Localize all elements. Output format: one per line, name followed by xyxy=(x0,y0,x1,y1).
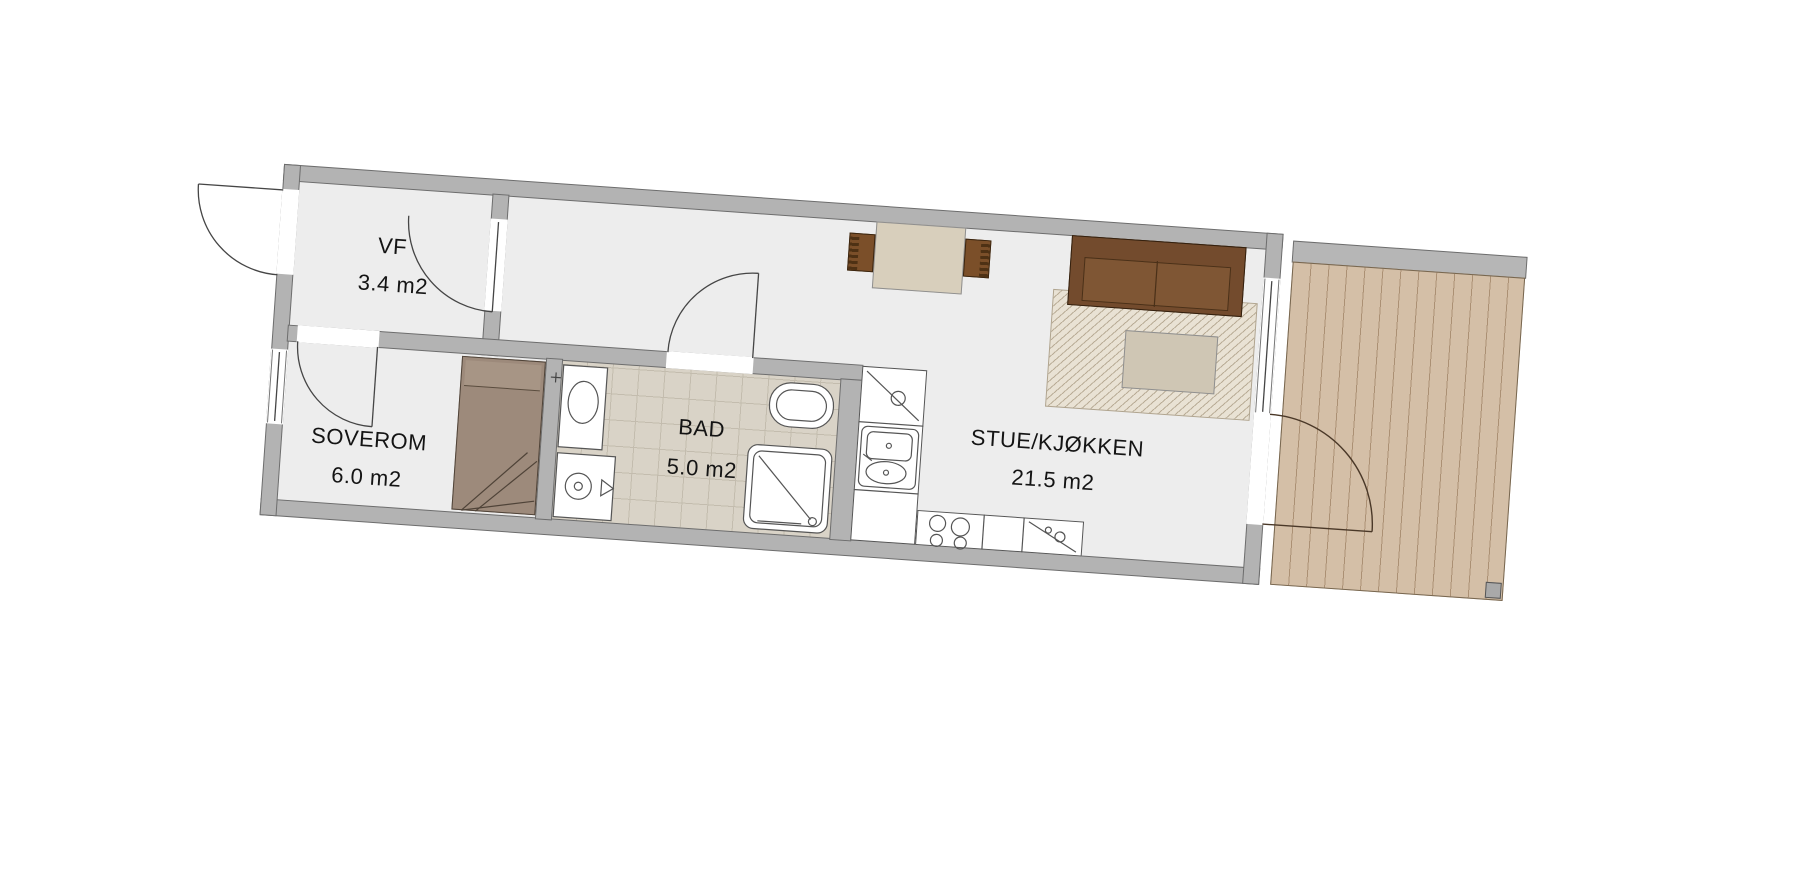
sofa xyxy=(1067,235,1246,317)
kitchen-counter-vertical xyxy=(850,366,927,545)
terrace-post xyxy=(1485,582,1502,599)
bathroom-tile-floor xyxy=(551,360,841,539)
sofa-seats xyxy=(1081,257,1231,311)
dining-table xyxy=(872,221,966,294)
chair-right xyxy=(963,239,992,279)
room-label-bad: BAD xyxy=(677,414,725,443)
room-label-vf: VF xyxy=(377,233,408,261)
chair-back xyxy=(979,241,990,278)
chair-left xyxy=(847,233,876,273)
terrace-deck xyxy=(1270,262,1525,601)
entrance-door-swing xyxy=(193,184,284,275)
bed-pillow xyxy=(464,360,542,391)
bed xyxy=(451,356,546,515)
room-area-soverom: 6.0 m2 xyxy=(330,462,402,493)
chair-back xyxy=(848,234,859,271)
floorplan-canvas: VF 3.4 m2 SOVEROM 6.0 m2 BAD 5.0 m2 STUE… xyxy=(0,0,1800,881)
room-area-vf: 3.4 m2 xyxy=(357,269,429,300)
floor-plan: VF 3.4 m2 SOVEROM 6.0 m2 BAD 5.0 m2 STUE… xyxy=(260,165,1527,606)
coffee-table xyxy=(1121,330,1218,394)
room-area-bad: 5.0 m2 xyxy=(666,453,738,484)
